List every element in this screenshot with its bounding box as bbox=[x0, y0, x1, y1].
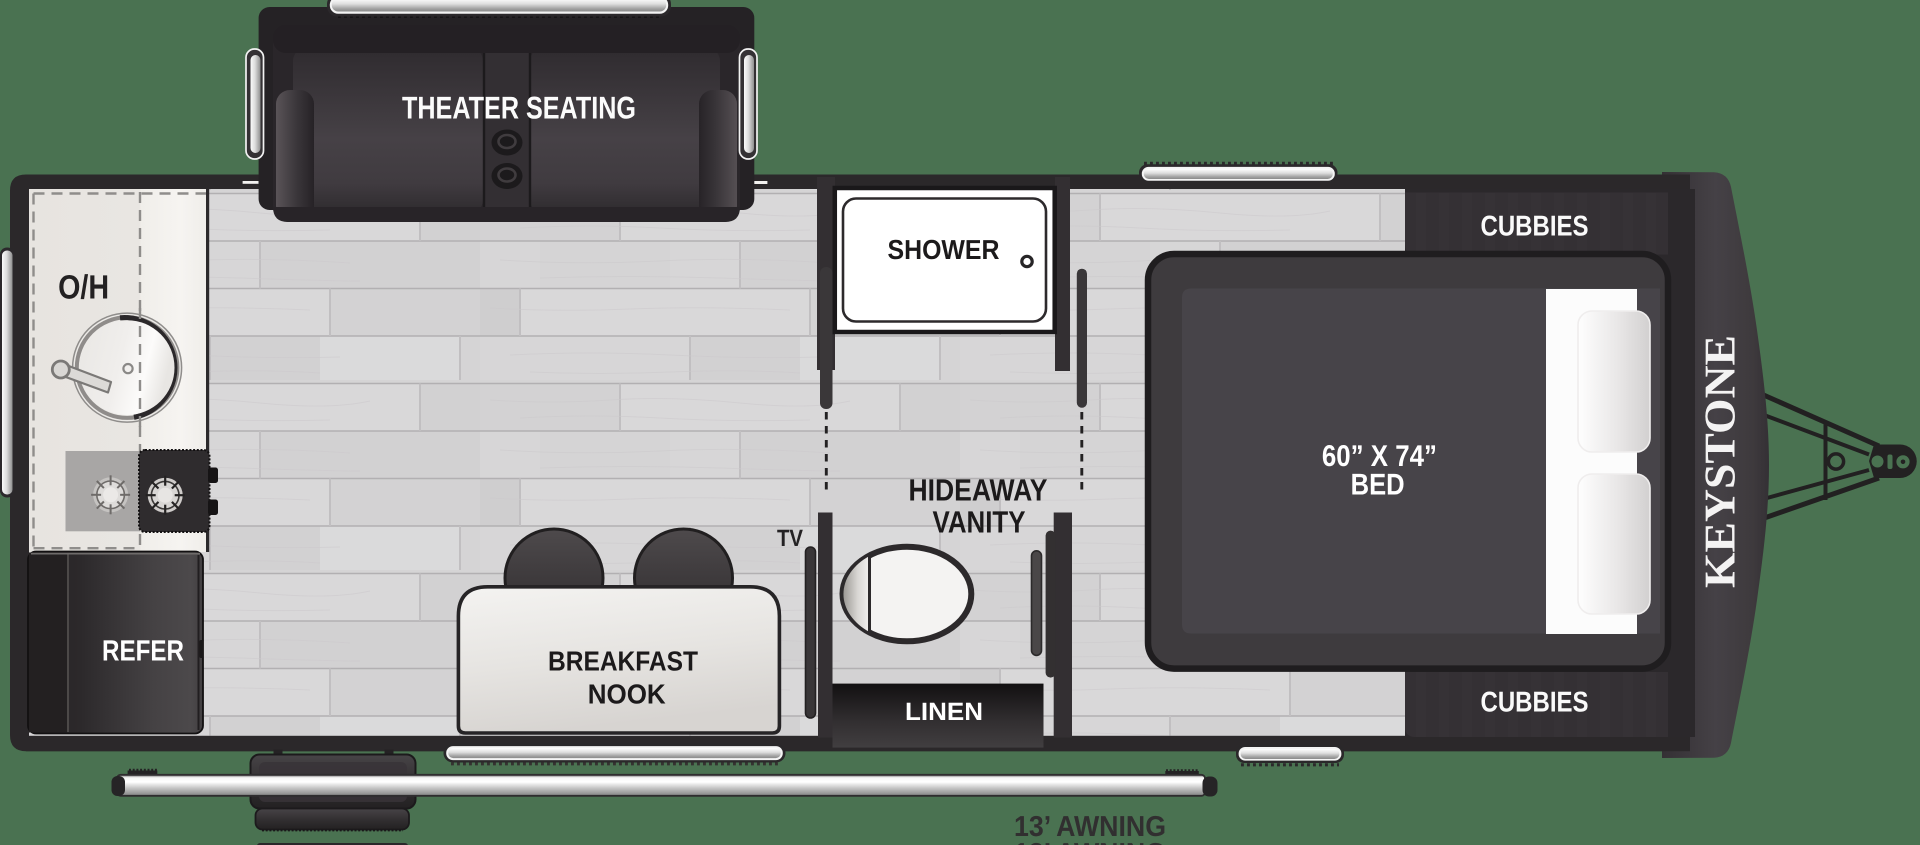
svg-text:KEYSTONE: KEYSTONE bbox=[1696, 335, 1745, 588]
svg-text:LINEN: LINEN bbox=[905, 698, 983, 726]
svg-text:O/H: O/H bbox=[58, 269, 109, 307]
svg-text:VANITY: VANITY bbox=[933, 505, 1026, 540]
svg-text:NOOK: NOOK bbox=[588, 678, 666, 709]
svg-text:TV: TV bbox=[777, 526, 803, 552]
svg-text:13’ AWNING: 13’ AWNING bbox=[1014, 838, 1166, 845]
svg-text:CUBBIES: CUBBIES bbox=[1481, 686, 1589, 718]
svg-text:SHOWER: SHOWER bbox=[888, 234, 1000, 265]
svg-text:BREAKFAST: BREAKFAST bbox=[548, 646, 698, 677]
svg-text:BED: BED bbox=[1351, 469, 1405, 502]
svg-text:THEATER SEATING: THEATER SEATING bbox=[402, 90, 636, 126]
svg-text:HIDEAWAY: HIDEAWAY bbox=[909, 472, 1048, 507]
svg-text:REFER: REFER bbox=[102, 635, 184, 668]
svg-text:CUBBIES: CUBBIES bbox=[1481, 210, 1589, 242]
